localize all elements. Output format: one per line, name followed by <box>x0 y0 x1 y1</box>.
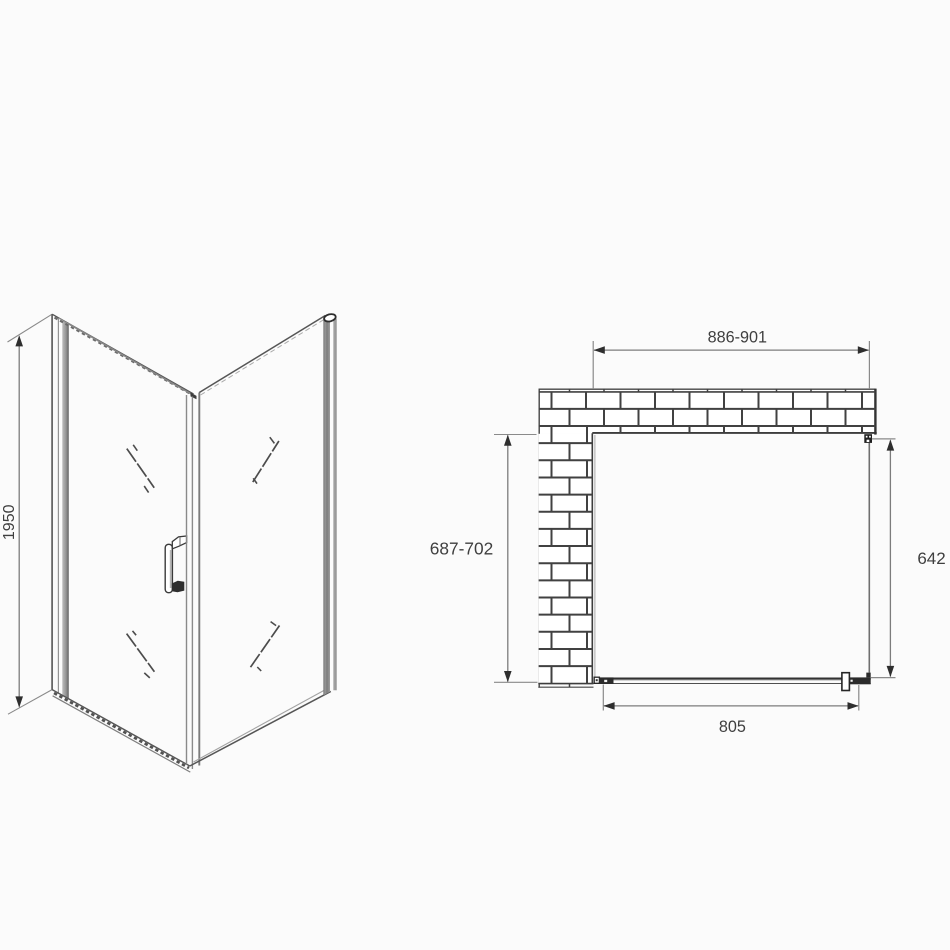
svg-text:1950: 1950 <box>1 504 18 540</box>
svg-text:805: 805 <box>719 718 746 736</box>
svg-text:886-901: 886-901 <box>708 329 767 347</box>
svg-text:687-702: 687-702 <box>430 539 493 559</box>
svg-text:642: 642 <box>917 549 945 568</box>
